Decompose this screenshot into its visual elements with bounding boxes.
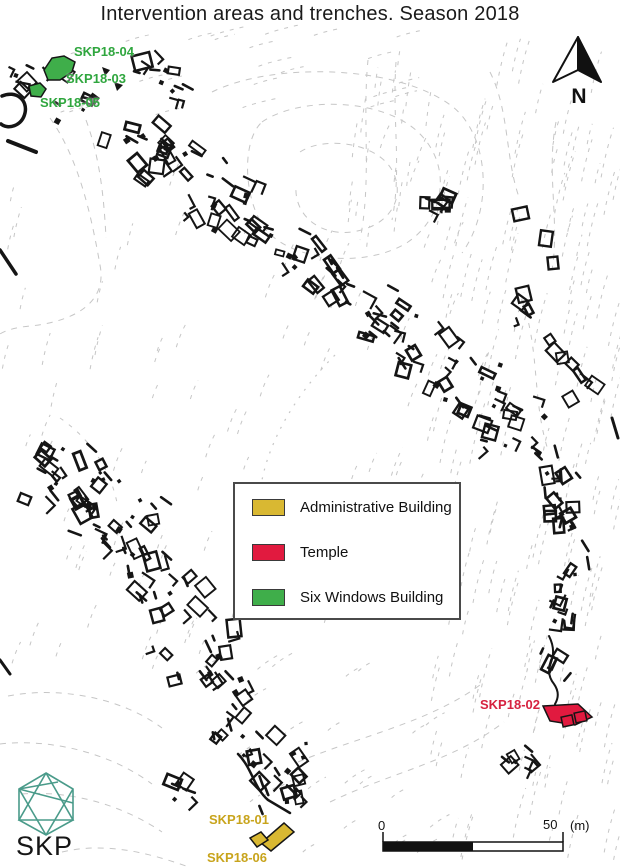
contour-dash-field bbox=[2, 25, 620, 860]
trench-shapes bbox=[29, 56, 592, 851]
legend-swatch-administrative bbox=[252, 499, 285, 516]
north-label: N bbox=[564, 85, 594, 109]
legend-label-administrative: Administrative Building bbox=[300, 499, 452, 516]
figure-title: Intervention areas and trenches. Season … bbox=[0, 3, 620, 26]
trench-label-skp18-04: SKP18-04 bbox=[74, 44, 134, 59]
trench-label-skp18-06: SKP18-06 bbox=[207, 850, 267, 865]
legend-box: Administrative Building Temple Six Windo… bbox=[233, 482, 461, 620]
scale-start-label: 0 bbox=[378, 818, 385, 833]
temple-room-b bbox=[574, 711, 587, 723]
trench-label-skp18-03: SKP18-03 bbox=[66, 71, 126, 86]
legend-swatch-six-windows bbox=[252, 589, 285, 606]
site-map-figure: Intervention areas and trenches. Season … bbox=[0, 0, 620, 867]
legend-label-six-windows: Six Windows Building bbox=[300, 589, 443, 606]
trench-label-skp18-02: SKP18-02 bbox=[480, 697, 540, 712]
north-arrow-icon bbox=[553, 37, 601, 82]
scale-end-label: 50 bbox=[543, 817, 557, 832]
scale-unit-label: (m) bbox=[570, 818, 590, 833]
trench-label-skp18-01: SKP18-01 bbox=[209, 812, 269, 827]
legend-item-six-windows: Six Windows Building bbox=[252, 589, 443, 606]
temple-room-a bbox=[561, 715, 574, 727]
legend-swatch-temple bbox=[252, 544, 285, 561]
map-canvas bbox=[0, 0, 620, 867]
legend-item-administrative: Administrative Building bbox=[252, 499, 452, 516]
trench-label-skp18-05: SKP18-05 bbox=[40, 95, 100, 110]
skp-logo-icon bbox=[19, 773, 73, 835]
skp-logo-text: SKP bbox=[16, 831, 73, 862]
legend-item-temple: Temple bbox=[252, 544, 348, 561]
legend-label-temple: Temple bbox=[300, 544, 348, 561]
scale-bar bbox=[383, 832, 563, 851]
